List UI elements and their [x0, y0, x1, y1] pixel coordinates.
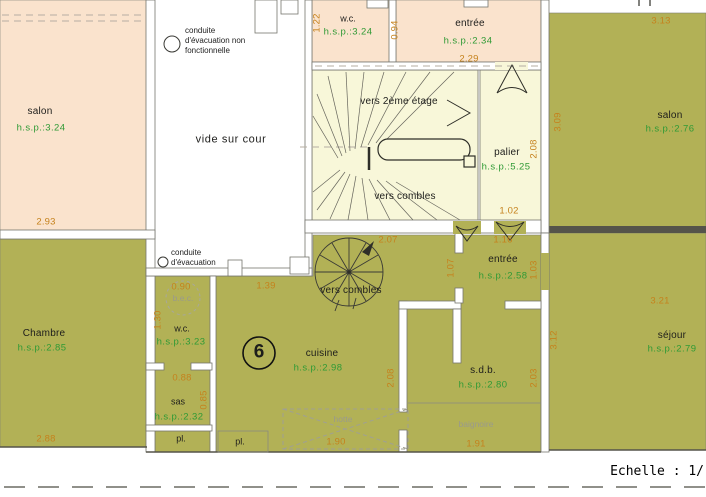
- dim-1-02: 1.02: [499, 206, 518, 216]
- room-hsp-wc-bottom: h.s.p.:3.23: [157, 337, 206, 347]
- dim-1-39: 1.39: [256, 281, 275, 291]
- hood-label: hotte: [334, 415, 353, 424]
- room-label-sdb: s.d.b.: [470, 366, 496, 376]
- dim-1-30: 1.30: [153, 310, 163, 329]
- scale-label: Echelle : 1/: [598, 464, 704, 479]
- dim-0-90: 0.90: [171, 282, 190, 292]
- dim-1-91: 1.91: [466, 439, 485, 449]
- room-hsp-sas: h.s.p.:2.32: [155, 412, 204, 422]
- room-hsp-sejour: h.s.p.:2.79: [648, 344, 697, 354]
- room-hsp-entree-mid: h.s.p.:2.58: [479, 271, 528, 281]
- duct-note-line2: d'évacuation non: [185, 37, 245, 45]
- room-label-salon-tr: salon: [658, 111, 683, 121]
- dim-1-90: 1.90: [326, 437, 345, 447]
- duct-note2-line2: d'évacuation: [171, 259, 216, 267]
- water-heater-label: b.e.c.: [173, 294, 194, 303]
- dim-1-03: 1.03: [529, 260, 539, 279]
- room-hsp-salon-tl: h.s.p.:3.24: [17, 123, 66, 133]
- dim-1-22: 1.22: [312, 13, 322, 32]
- closet-label-1: pl.: [176, 435, 186, 444]
- room-label-wc-bottom: w.c.: [174, 325, 190, 334]
- stair-label-up: vers 2ème étage: [360, 97, 438, 107]
- closet-label-2: pl.: [235, 438, 245, 447]
- dim-2-08-palier: 2.08: [529, 139, 539, 158]
- room-label-entree-mid: entrée: [488, 255, 518, 265]
- dim-2-03: 2.03: [529, 368, 539, 387]
- dim-3-21: 3.21: [650, 296, 669, 306]
- dim-0-88: 0.88: [172, 373, 191, 383]
- room-label-entree-top: entrée: [455, 19, 485, 29]
- room-hsp-cuisine: h.s.p.:2.98: [294, 363, 343, 373]
- dim-2-93: 2.93: [36, 217, 55, 227]
- area-label-vide-sur-cour: vide sur cour: [196, 135, 267, 146]
- dim-2-88: 2.88: [36, 434, 55, 444]
- dim-0-85: 0.85: [199, 390, 209, 409]
- room-hsp-wc-top: h.s.p.:3.24: [324, 27, 373, 37]
- duct-symbol-top: [164, 36, 180, 52]
- dim-1-07: 1.07: [446, 258, 456, 277]
- room-hsp-entree-top: h.s.p.:2.34: [444, 36, 493, 46]
- dim-3-12: 3.12: [549, 330, 559, 349]
- room-label-cuisine: cuisine: [306, 349, 339, 359]
- duct-note2-line1: conduite: [171, 249, 201, 257]
- room-hsp-salon-tr: h.s.p.:2.76: [646, 124, 695, 134]
- dim-3-13: 3.13: [651, 16, 670, 26]
- room-hsp-sdb: h.s.p.:2.80: [459, 380, 508, 390]
- floor-plan-drawing: [0, 0, 706, 497]
- room-hsp-chambre: h.s.p.:2.85: [18, 343, 67, 353]
- room-label-sas: sas: [171, 398, 185, 407]
- dim-2-08-cuisine: 2.08: [386, 368, 396, 387]
- room-label-wc-top: w.c.: [340, 15, 356, 24]
- room-label-palier: palier: [494, 148, 520, 158]
- duct-note-line1: conduite: [185, 27, 215, 35]
- unit-number: 6: [254, 343, 265, 362]
- dim-1-16: 1.16: [493, 235, 512, 245]
- dim-3-09: 3.09: [553, 112, 563, 131]
- room-label-chambre: Chambre: [23, 329, 66, 339]
- duct-note-line3: fonctionnelle: [185, 47, 230, 55]
- room-label-sejour: séjour: [658, 331, 686, 341]
- stair-label-attic: vers combles: [374, 192, 435, 202]
- floor-plan: salon h.s.p.:3.24 2.93 conduite d'évacua…: [0, 0, 706, 497]
- dim-2-29: 2.29: [459, 54, 478, 64]
- dim-2-07: 2.07: [378, 235, 397, 245]
- spiral-stair-label: vers combles: [320, 286, 381, 296]
- duct-symbol-mid: [158, 257, 168, 267]
- room-hsp-palier: h.s.p.:5.25: [482, 162, 531, 172]
- dim-0-94: 0.94: [390, 20, 400, 39]
- room-label-salon-tl: salon: [28, 107, 53, 117]
- bathtub-label: baignoire: [459, 420, 494, 429]
